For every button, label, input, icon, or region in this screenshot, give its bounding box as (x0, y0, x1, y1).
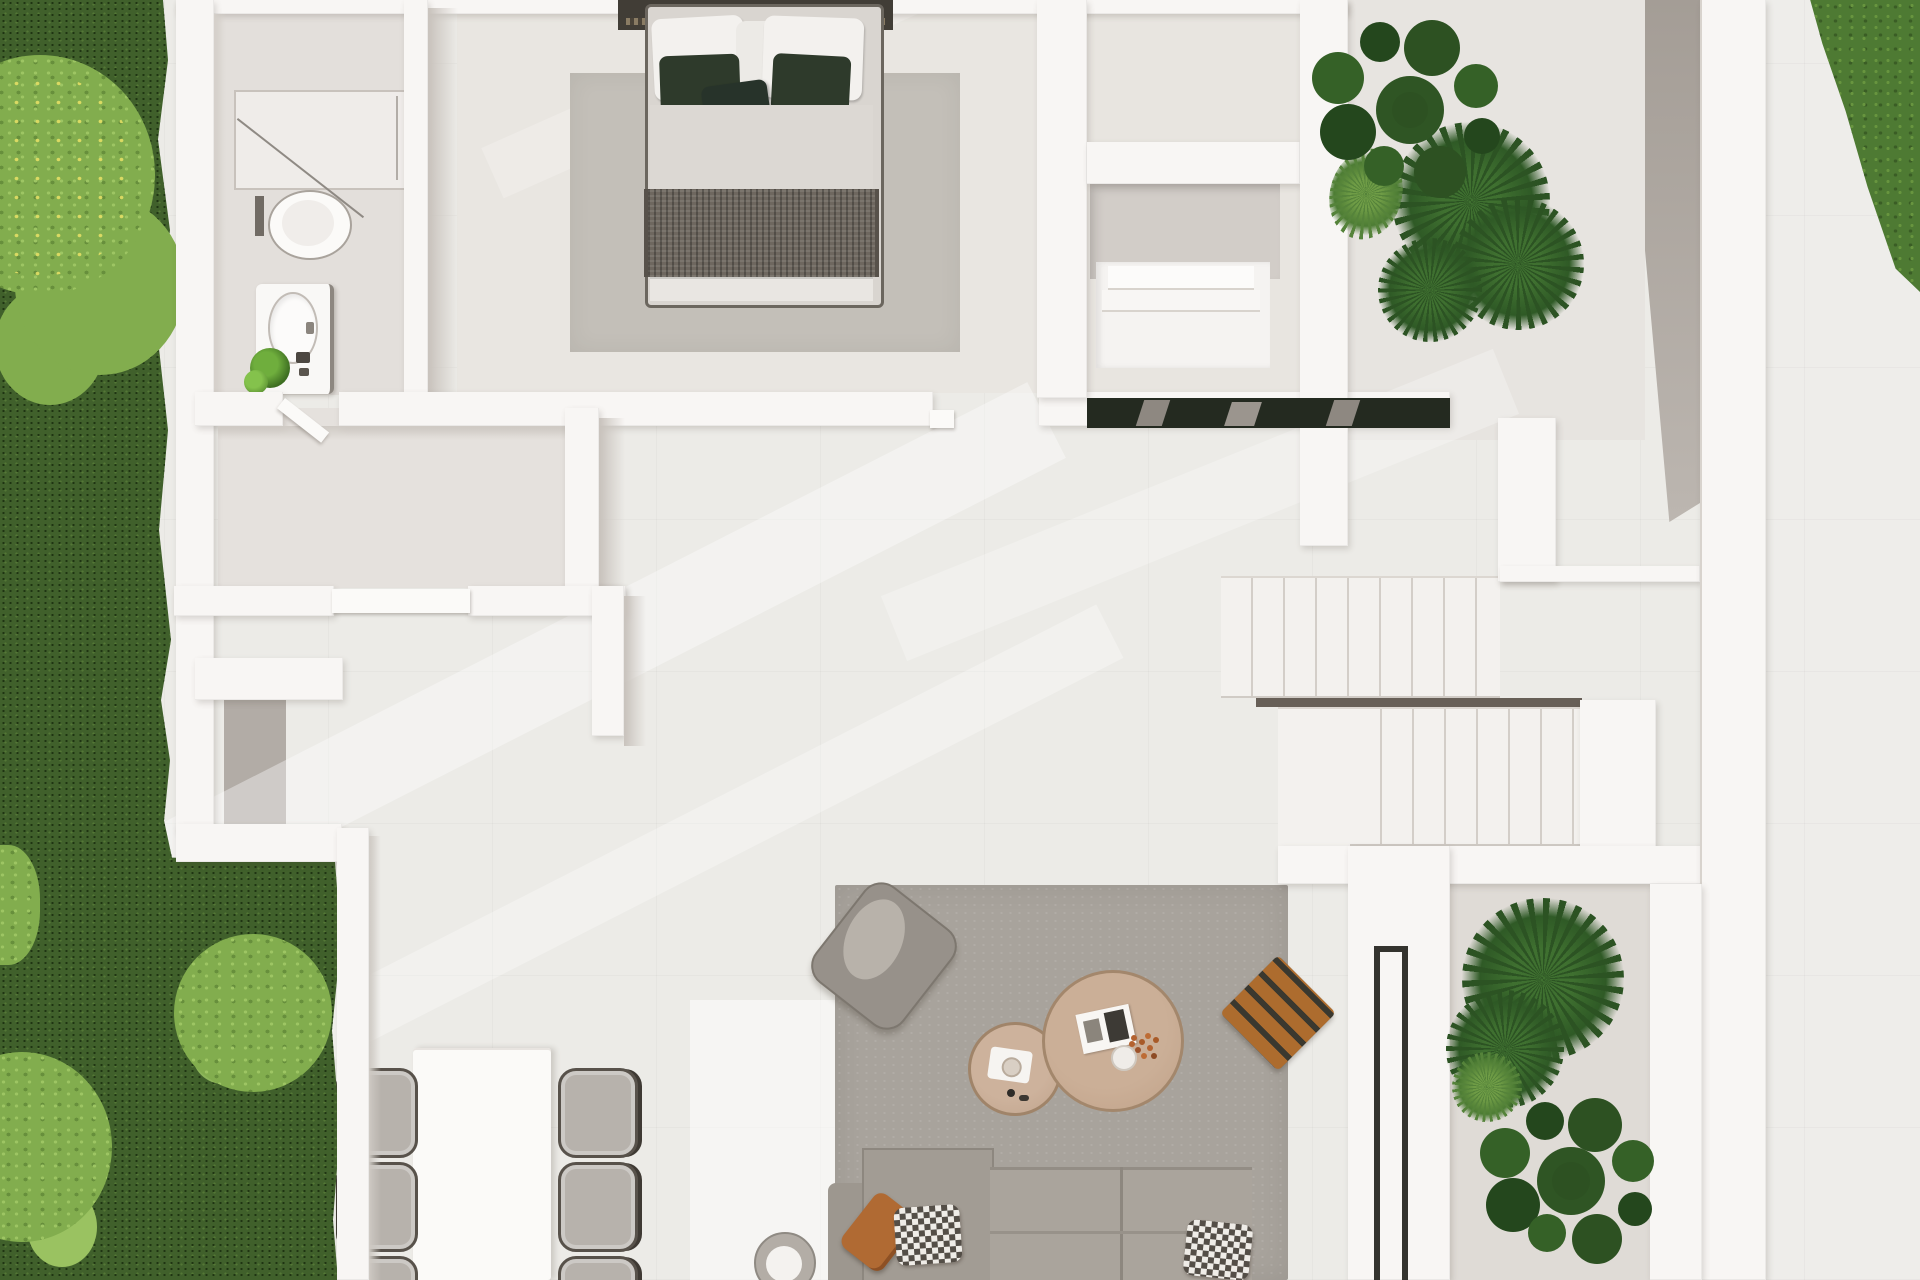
wall-face (369, 836, 381, 1280)
fiddle-leaf-fig (1392, 92, 1428, 128)
wall-planter-east (1650, 884, 1702, 1280)
wall-stair-east (1580, 700, 1656, 850)
wall-long-south (195, 392, 283, 426)
door-leaf-bedroom (930, 410, 954, 428)
cup (1000, 1056, 1023, 1079)
door-leaf-storage-south (332, 589, 470, 613)
sunlight-streak (690, 1000, 838, 1280)
dried-flowers (1131, 1035, 1137, 1041)
dresser-mid-slab (1102, 290, 1260, 310)
garden-bush (174, 934, 332, 1092)
stair-lower-flight (1350, 707, 1580, 846)
void-notch (1136, 400, 1170, 426)
bed-sheet-fold (650, 277, 873, 301)
wall-stair-west (1498, 418, 1556, 582)
wall-shadow-wedge (1645, 0, 1703, 522)
void-notch (1224, 402, 1262, 426)
wall-stair-edge (1500, 566, 1700, 582)
stair-upper-flight (1221, 576, 1500, 698)
wall-long-south (339, 392, 933, 426)
void-notch (1326, 400, 1360, 426)
wall-east-column (1700, 0, 1766, 1280)
wall-hall-corner (592, 586, 624, 736)
remote (1007, 1089, 1015, 1097)
dining-chair (558, 1068, 638, 1158)
wall-vestibule (195, 658, 343, 700)
soap-set (296, 352, 310, 363)
window-frame (1374, 948, 1380, 1280)
window-frame (1374, 946, 1408, 952)
flower-vase (1111, 1045, 1137, 1071)
wall-dining-west (337, 828, 369, 1280)
dining-table (413, 1048, 551, 1280)
wall-patio-link (176, 824, 342, 862)
window-frame (1402, 946, 1408, 1280)
wall-below-stairs (1278, 846, 1722, 884)
patio-door-recess (224, 700, 286, 824)
dresser-top-slab (1108, 266, 1254, 288)
toilet-flush-plate (255, 196, 264, 236)
wall-storage-east (565, 408, 599, 590)
fiddle-leaf-fig (1552, 1162, 1590, 1200)
wall-face (624, 596, 646, 746)
bed-throw-blanket (648, 189, 875, 277)
tray (987, 1046, 1033, 1084)
vanity-faucet (306, 322, 314, 334)
wall-face (214, 14, 226, 392)
magazine-photo (1104, 1009, 1130, 1043)
wall-closet-east (1300, 0, 1348, 546)
soap-set (299, 368, 309, 376)
shower-tray (234, 90, 408, 190)
shower-glass-side (396, 96, 398, 180)
pillow-gingham (1182, 1219, 1253, 1280)
magazine-photo (1083, 1018, 1103, 1043)
wall-face (218, 426, 567, 440)
dining-chair (558, 1256, 638, 1280)
floorplan-render (0, 0, 1920, 1280)
side-table-top (766, 1246, 802, 1280)
stair-landing (1278, 707, 1350, 846)
wall-bath-bed-divider (404, 0, 428, 398)
stairwell-void-strip (1087, 398, 1450, 428)
pillow-gingham (893, 1204, 963, 1266)
dresser-shelves (1096, 262, 1270, 368)
double-bed (645, 4, 884, 308)
wall-bedroom-east (1037, 0, 1087, 398)
dining-chair (558, 1162, 638, 1252)
wall-storage-south (174, 586, 334, 616)
wall-face (428, 8, 458, 396)
toilet-seat (282, 200, 334, 246)
wall-face (599, 418, 625, 604)
coffee-table-large (1042, 970, 1184, 1112)
wall-niche-top (1087, 142, 1300, 184)
seat-seam (1120, 1167, 1123, 1280)
vanity-plant (244, 370, 268, 394)
remote (1019, 1095, 1029, 1101)
window-wall (1348, 846, 1450, 1280)
stairwell-void-line (1256, 698, 1582, 707)
